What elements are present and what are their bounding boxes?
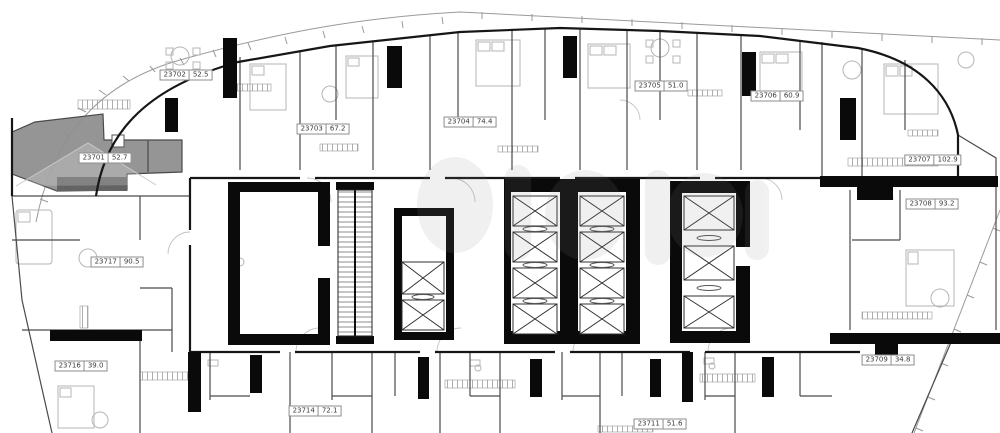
unit-label-23717[interactable]: 23717 90.5 bbox=[91, 257, 144, 268]
unit-label-23702[interactable]: 23702 52.5 bbox=[160, 70, 213, 81]
unit-number: 23717 bbox=[92, 258, 121, 267]
unit-number: 23704 bbox=[445, 118, 474, 127]
watermark bbox=[417, 157, 769, 265]
unit-label-23707[interactable]: 23707 102.9 bbox=[904, 155, 961, 166]
unit-number: 23706 bbox=[752, 92, 781, 101]
furniture-layer bbox=[16, 39, 974, 432]
unit-number: 23702 bbox=[161, 71, 190, 80]
unit-number: 23711 bbox=[635, 420, 664, 429]
unit-label-23714[interactable]: 23714 72.1 bbox=[289, 406, 342, 417]
unit-label-23709[interactable]: 23709 34.8 bbox=[862, 355, 915, 366]
unit-number: 23709 bbox=[863, 356, 892, 365]
unit-number: 23703 bbox=[298, 125, 327, 134]
floor-plan-drawing bbox=[0, 0, 1000, 433]
unit-area: 67.2 bbox=[327, 125, 349, 134]
unit-area: 90.5 bbox=[121, 258, 143, 267]
unit-number: 23707 bbox=[905, 156, 934, 165]
unit-number: 23701 bbox=[80, 154, 109, 163]
unit-label-23716[interactable]: 23716 39.0 bbox=[55, 361, 108, 372]
unit-number: 23716 bbox=[56, 362, 85, 371]
unit-label-23706[interactable]: 23706 60.9 bbox=[751, 91, 804, 102]
unit-area: 34.8 bbox=[892, 356, 914, 365]
unit-number: 23714 bbox=[290, 407, 319, 416]
unit-label-23701[interactable]: 23701 52.7 bbox=[79, 153, 132, 164]
unit-area: 60.9 bbox=[781, 92, 803, 101]
stairwell bbox=[338, 190, 372, 336]
unit-label-23705[interactable]: 23705 51.0 bbox=[635, 81, 688, 92]
unit-area: 74.4 bbox=[474, 118, 496, 127]
unit-area: 51.6 bbox=[664, 420, 686, 429]
unit-label-23703[interactable]: 23703 67.2 bbox=[297, 124, 350, 135]
unit-area: 93.2 bbox=[936, 200, 958, 209]
unit-area: 72.1 bbox=[319, 407, 341, 416]
unit-number: 23705 bbox=[636, 82, 665, 91]
floor-plan-page: 23701 52.7 23702 52.5 23703 67.2 23704 7… bbox=[0, 0, 1000, 433]
unit-number: 23708 bbox=[907, 200, 936, 209]
unit-area: 52.5 bbox=[190, 71, 212, 80]
unit-label-23708[interactable]: 23708 93.2 bbox=[906, 199, 959, 210]
unit-label-23711[interactable]: 23711 51.6 bbox=[634, 419, 687, 430]
unit-label-23704[interactable]: 23704 74.4 bbox=[444, 117, 497, 128]
unit-area: 39.0 bbox=[85, 362, 107, 371]
unit-area: 52.7 bbox=[109, 154, 131, 163]
unit-area: 51.0 bbox=[665, 82, 687, 91]
unit-area: 102.9 bbox=[935, 156, 961, 165]
